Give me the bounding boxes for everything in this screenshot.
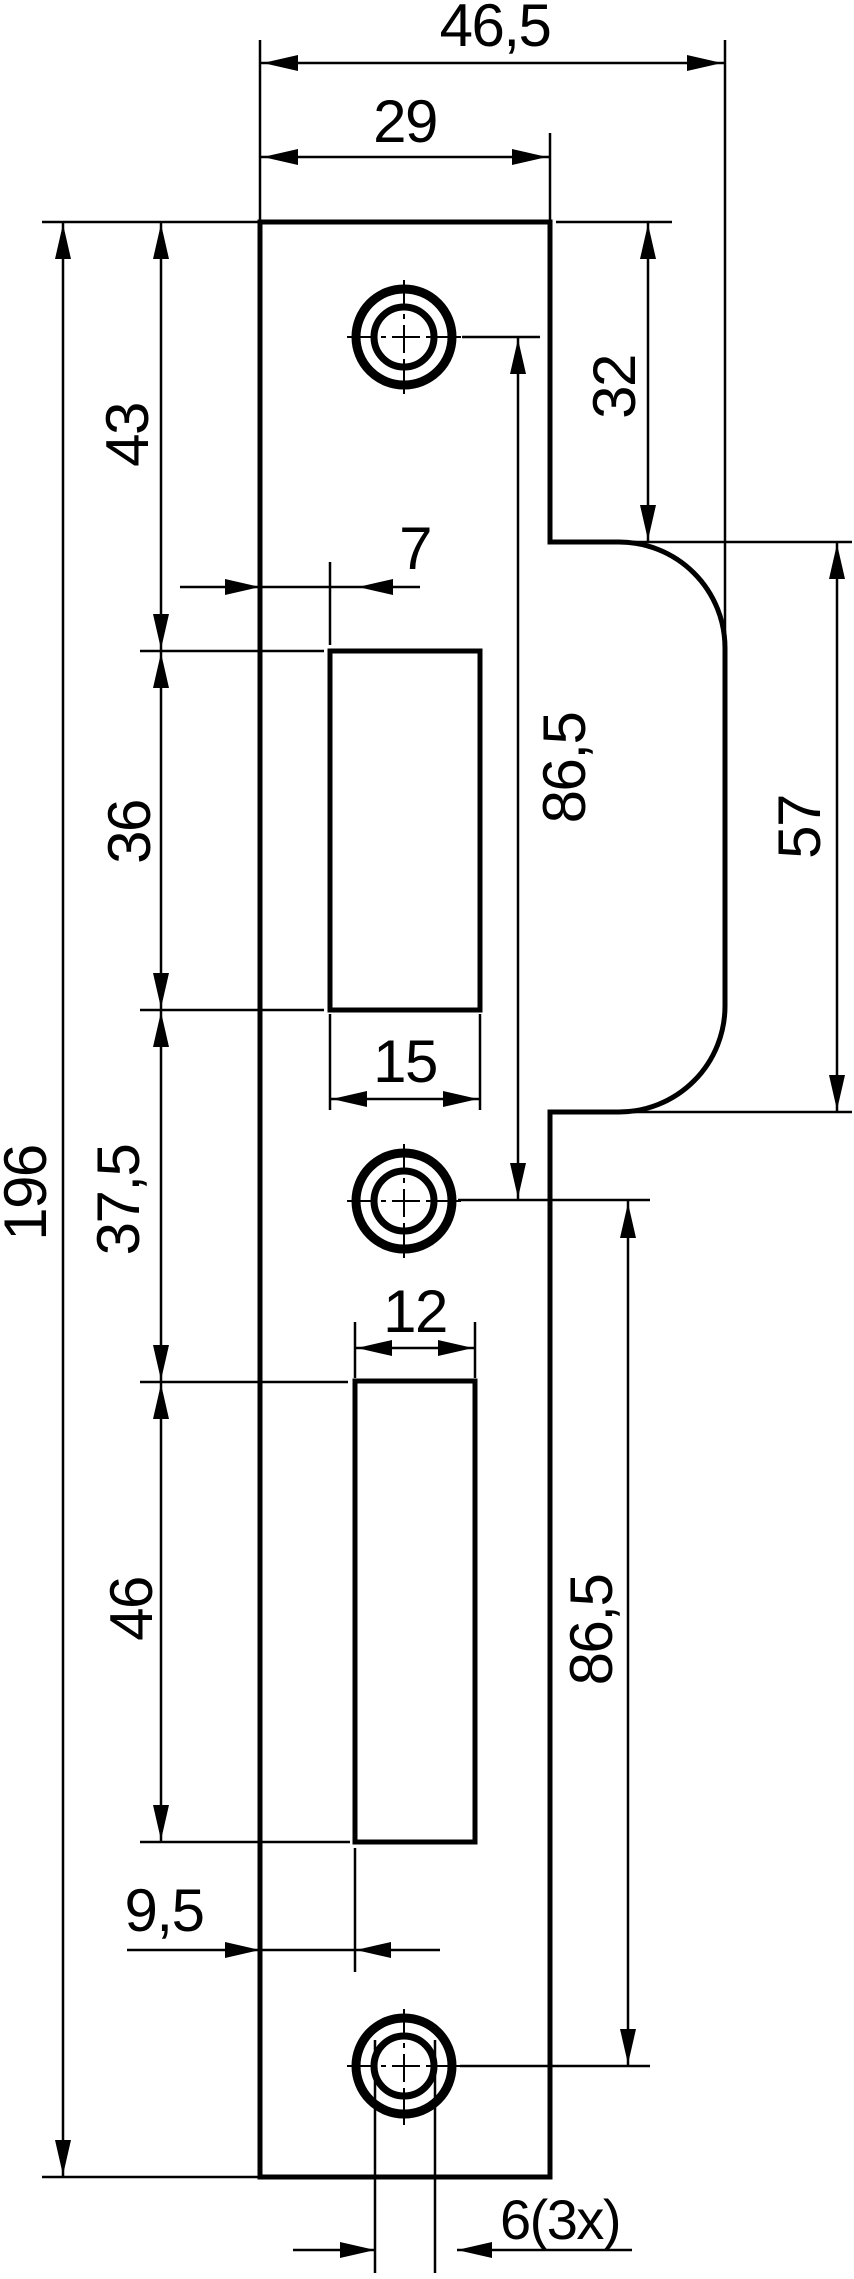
arrow-hole-dia-right: [457, 2242, 492, 2258]
dim-label-hole-diameter: 6(3x): [500, 2192, 620, 2248]
arrow-lip-length-top: [829, 544, 845, 579]
dim-label-cutout2-width: 12: [383, 1282, 447, 1342]
arrow-chain-36-top: [153, 653, 169, 688]
drawing-sheet: 46,5 29 43 32 7 36 86,5 57 15 37,5 196 1…: [0, 0, 854, 2279]
latch-cutout-lower: [355, 1381, 475, 1842]
dim-label-cutout2-offset: 9,5: [125, 1881, 204, 1941]
arrow-chain-46-bottom: [153, 1805, 169, 1840]
arrow-cutout2-offset-left: [225, 1942, 260, 1958]
dim-label-cutout1-offset: 7: [399, 519, 431, 579]
arrow-hole-spacing-lower-top: [620, 1203, 636, 1238]
dim-label-total-width: 46,5: [440, 0, 551, 56]
arrow-chain-37-5-top: [153, 1012, 169, 1047]
arrow-body-width-left: [263, 149, 298, 165]
arrow-top-to-lip-bottom: [640, 505, 656, 540]
dim-label-lip-length: 57: [770, 795, 830, 859]
dim-label-cutout1-width: 15: [373, 1032, 437, 1092]
arrow-chain-37-5-bottom: [153, 1345, 169, 1380]
arrow-cutout1-offset-left: [225, 579, 260, 595]
dim-label-cutout2-length: 46: [102, 1577, 162, 1641]
arrow-total-length-bottom: [55, 2140, 71, 2175]
arrow-total-width-left: [263, 55, 298, 71]
dim-label-cutout1-length: 36: [100, 800, 160, 864]
dim-label-total-length: 196: [0, 1145, 56, 1241]
dim-label-top-to-lip: 32: [585, 355, 645, 419]
arrow-chain-36-bottom: [153, 973, 169, 1008]
arrow-body-width-right: [512, 149, 547, 165]
arrow-hole-dia-left: [340, 2242, 375, 2258]
dim-label-hole-spacing-lower: 86,5: [562, 1575, 622, 1686]
dim-label-hole-spacing-upper: 86,5: [535, 713, 595, 824]
arrow-top-to-lip-top: [640, 224, 656, 259]
latch-cutout-upper: [330, 651, 480, 1010]
dim-label-top-to-cutout1: 43: [98, 403, 158, 467]
arrow-hole-spacing-lower-bottom: [620, 2029, 636, 2064]
arrow-chain-43-top: [153, 224, 169, 259]
dim-label-body-width: 29: [373, 92, 437, 152]
arrow-total-length-top: [55, 224, 71, 259]
arrow-chain-46-top: [153, 1384, 169, 1419]
arrow-lip-length-bottom: [829, 1075, 845, 1110]
dim-label-between-cutouts: 37,5: [89, 1145, 149, 1256]
arrow-total-width-right: [687, 55, 722, 71]
arrow-chain-43-bottom: [153, 614, 169, 649]
